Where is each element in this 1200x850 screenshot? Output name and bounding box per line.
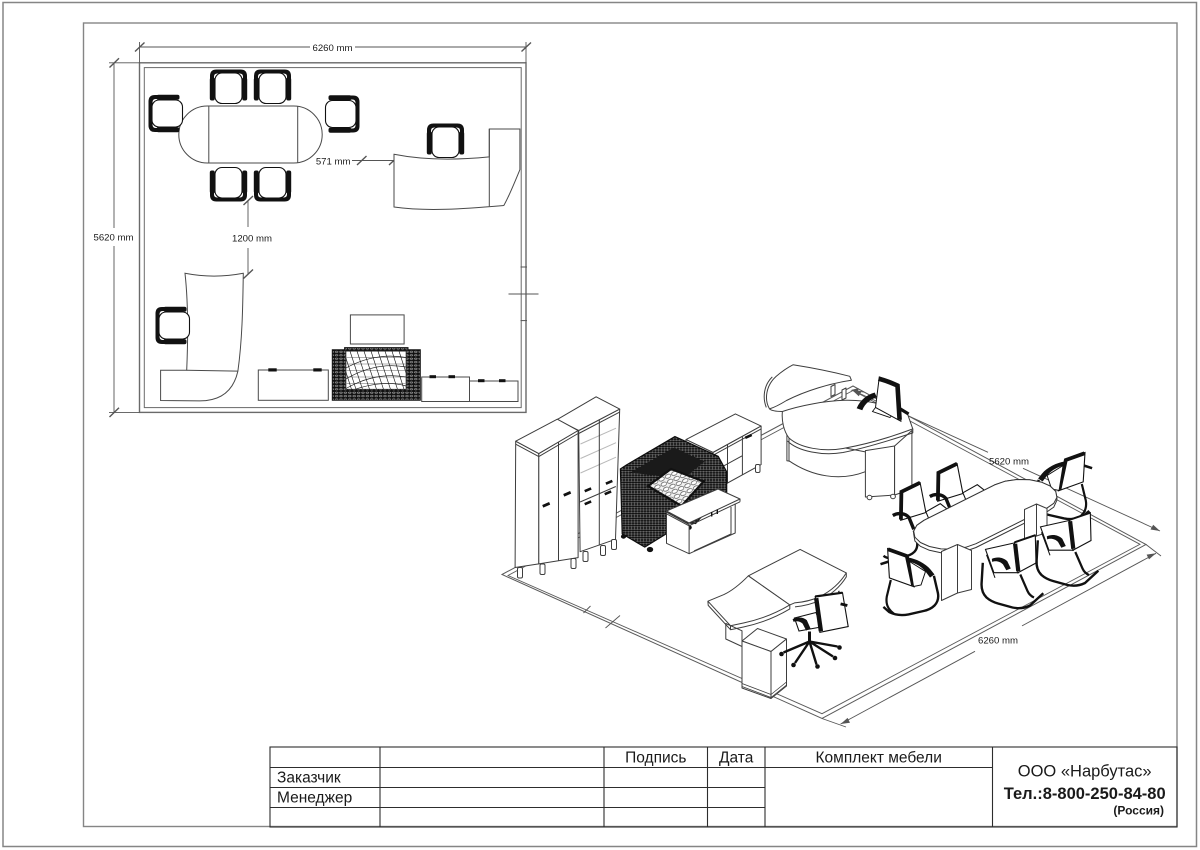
svg-text:Комплект мебели: Комплект мебели: [816, 750, 942, 767]
svg-text:5620 mm: 5620 mm: [94, 233, 134, 244]
svg-text:5620 mm: 5620 mm: [989, 457, 1029, 468]
svg-text:Дата: Дата: [719, 750, 754, 767]
svg-text:Подпись: Подпись: [625, 750, 686, 767]
svg-text:ООО «Нарбутас»: ООО «Нарбутас»: [1018, 763, 1152, 781]
svg-text:Заказчик: Заказчик: [277, 770, 341, 787]
svg-text:6260 mm: 6260 mm: [313, 43, 353, 54]
svg-text:(Россия): (Россия): [1113, 804, 1164, 818]
svg-text:571 mm: 571 mm: [316, 157, 351, 168]
svg-text:Тел.:8-800-250-84-80: Тел.:8-800-250-84-80: [1004, 785, 1166, 803]
svg-text:1200 mm: 1200 mm: [232, 234, 272, 245]
svg-text:6260 mm: 6260 mm: [978, 636, 1018, 647]
svg-text:Менеджер: Менеджер: [277, 790, 352, 807]
